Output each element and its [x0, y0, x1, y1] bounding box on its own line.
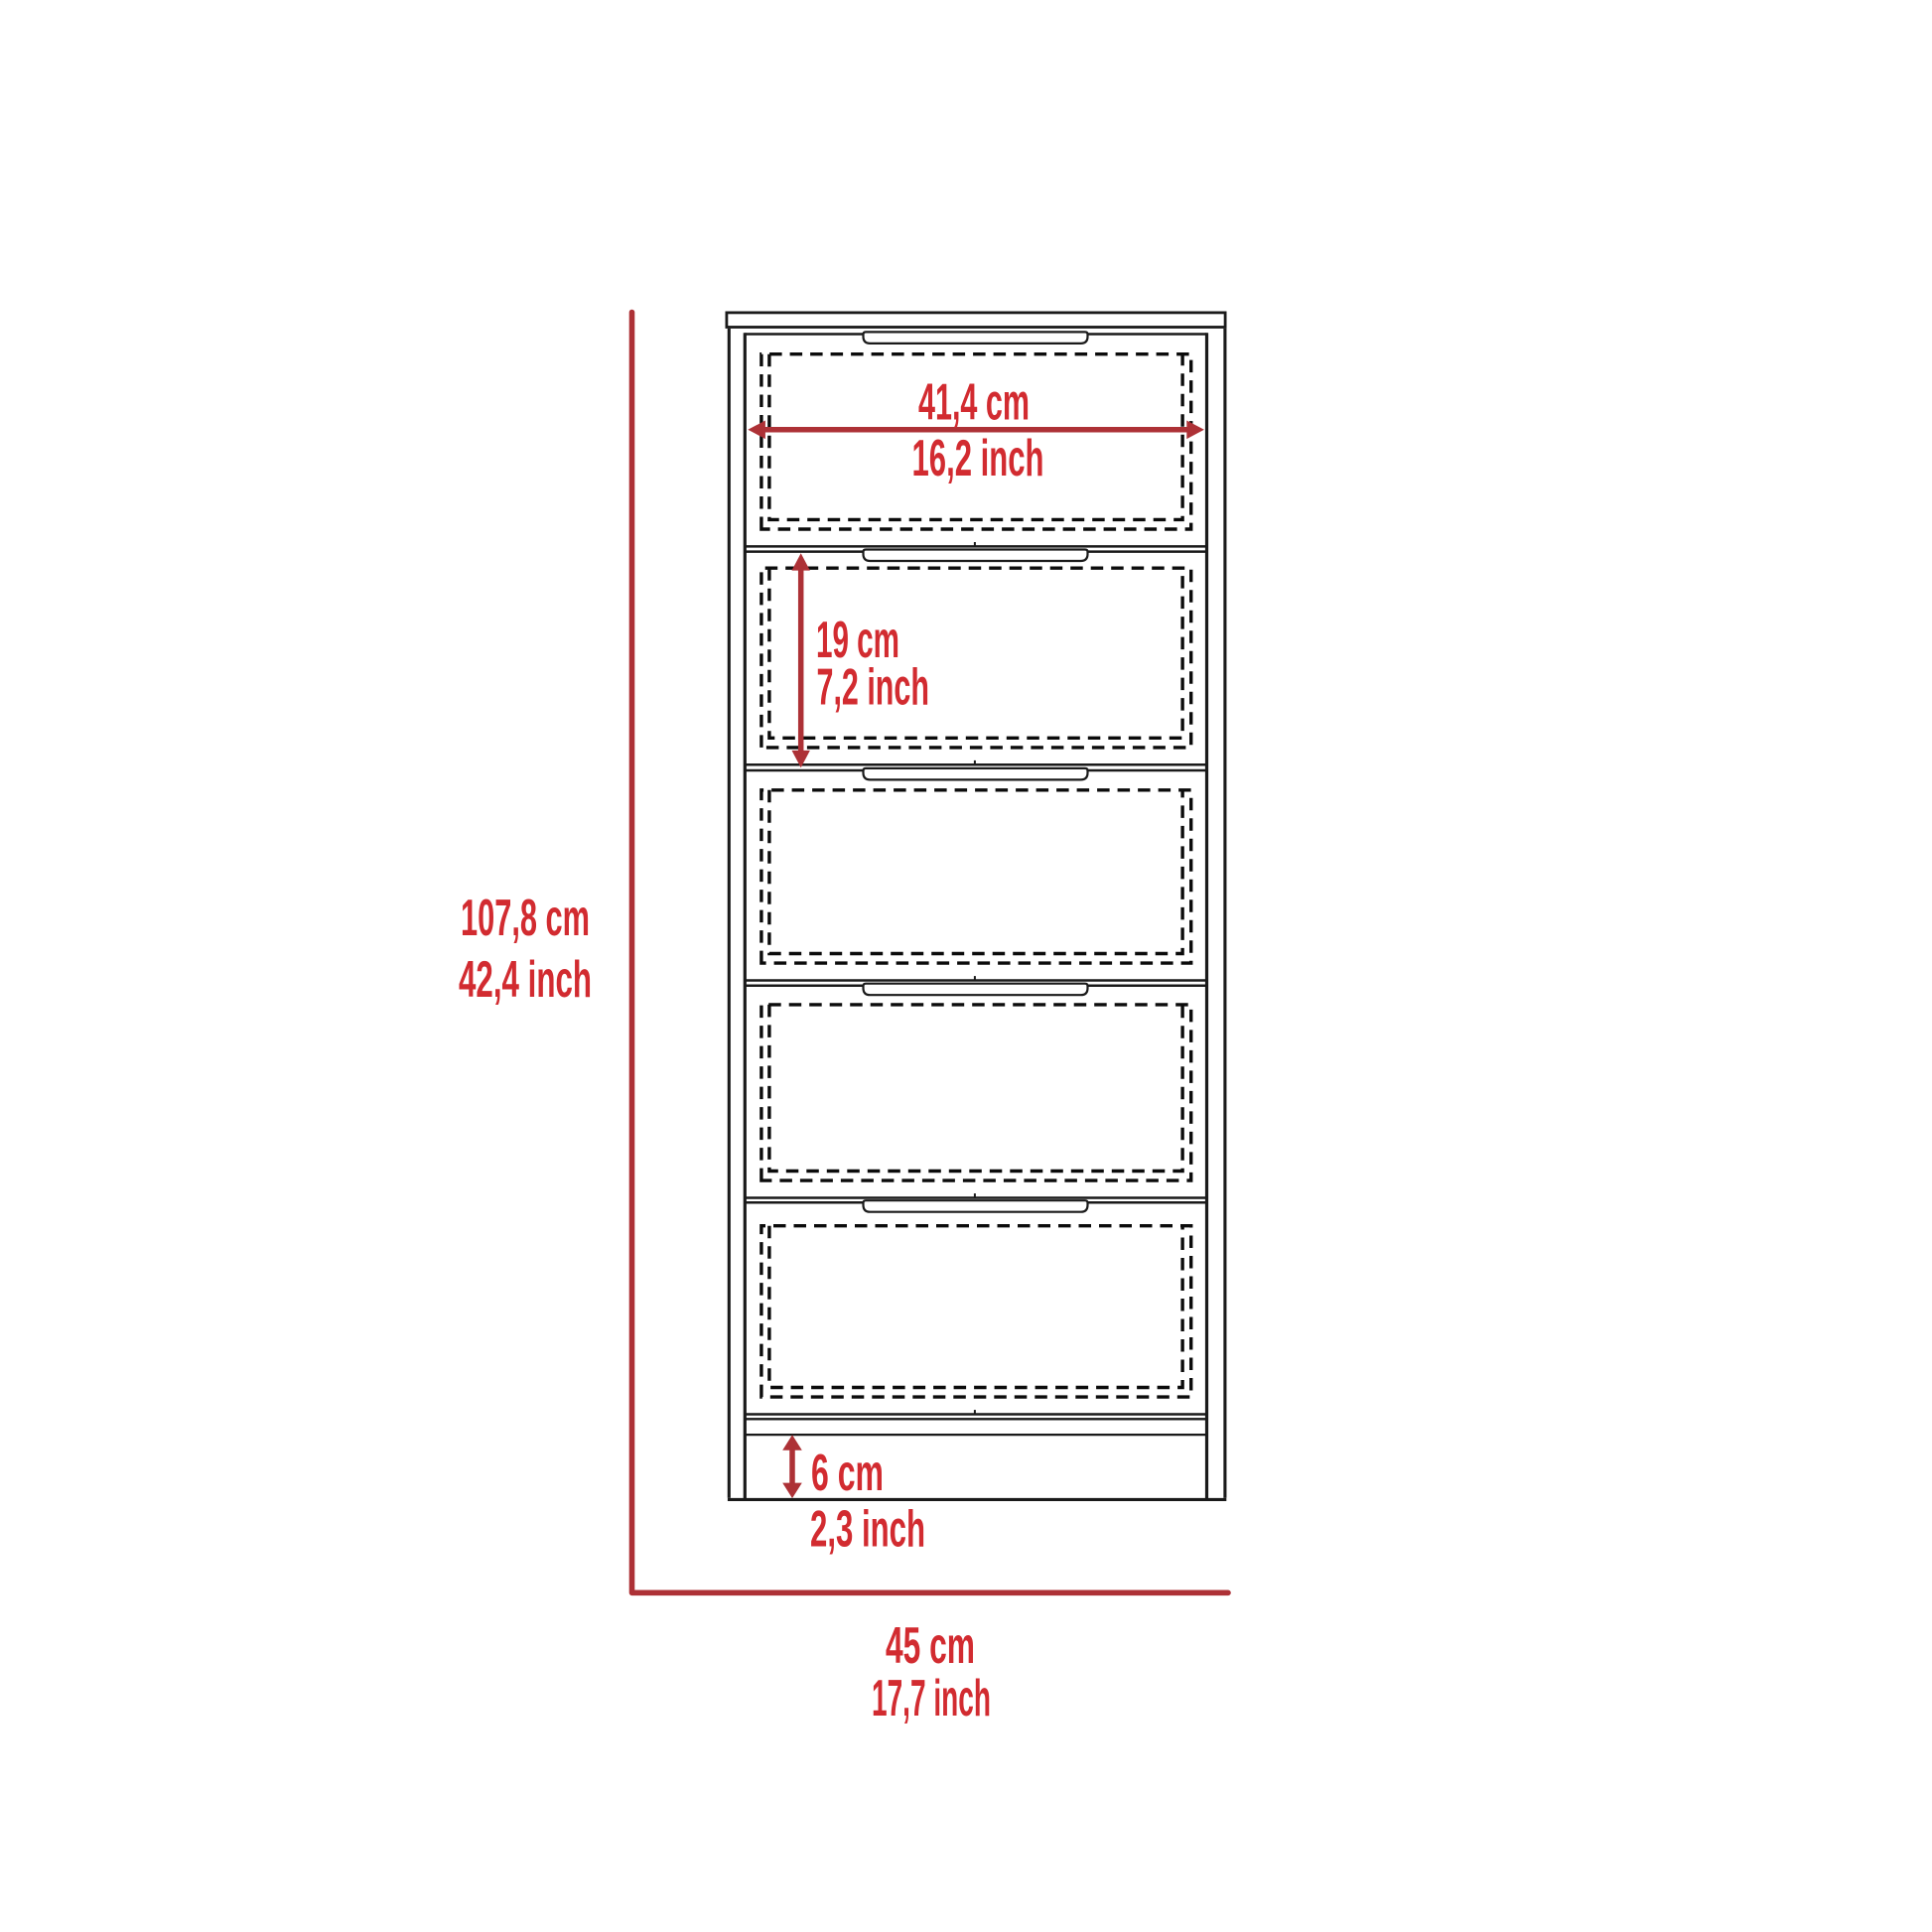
svg-text:2,3 inch: 2,3 inch: [810, 1500, 925, 1558]
svg-text:107,8 cm: 107,8 cm: [461, 890, 590, 947]
svg-text:6 cm: 6 cm: [811, 1445, 884, 1502]
svg-text:16,2 inch: 16,2 inch: [912, 430, 1044, 487]
svg-text:45 cm: 45 cm: [886, 1617, 975, 1675]
svg-text:17,7 inch: 17,7 inch: [872, 1670, 991, 1727]
svg-text:7,2 inch: 7,2 inch: [817, 659, 930, 717]
svg-text:42,4 inch: 42,4 inch: [459, 951, 592, 1009]
svg-text:41,4 cm: 41,4 cm: [918, 374, 1030, 432]
